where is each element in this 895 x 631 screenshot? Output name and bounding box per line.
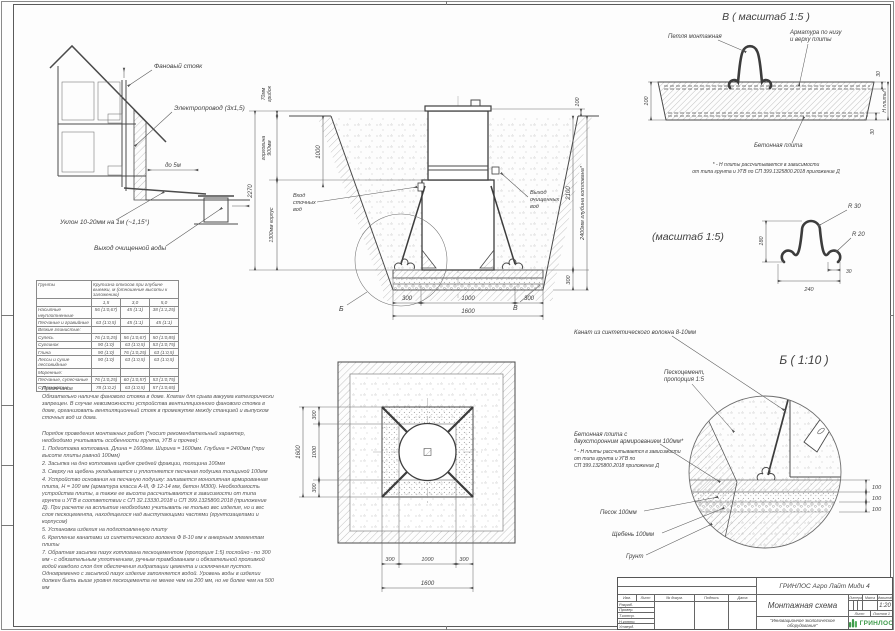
label-treated-water-outlet: Выход очищенной воды [94,244,166,252]
slope-cell: 76 (1:0,25) [121,349,150,356]
r20-leader [836,238,851,252]
detail-b-note-l2: от типа грунта и УГВ по [574,456,635,462]
detail-v-drawing: В ( масштаб 1:5 ) Петля монтажная Армату… [640,4,892,186]
label-sandcement-l1: Пескоцемент, [664,370,705,376]
center-hatch-square [424,449,431,456]
roof-line [50,46,166,142]
rebar-leader [799,44,808,86]
plan-view-drawing: 300 1000 300 1600 300 1000 300 1600 [293,326,545,608]
dim-l300b: 300 [312,482,318,492]
anchor-loop-profile [782,221,840,262]
label-concrete-plate: Бетонная плита [754,143,803,149]
slope-cell: 56 (1:0,67) [121,334,150,341]
depth-2: 3,0 [121,299,150,306]
right-center-mark [890,315,894,316]
house-elevation-drawing: до 5м Фановый стояк Электропровод (3х1,5… [36,28,254,270]
dim-240: 240 [803,287,814,293]
table-row: Насыпные неуплотненные56 (1:0,67)45 (1:1… [37,306,179,319]
table-row: Лессы и сухие лессовидные90 (1:0)63 (1:0… [37,356,179,369]
col-doc: № докум. [654,594,694,601]
slope-cell: 90 (1:0) [92,349,121,356]
dim-cap-label: грибок [267,85,273,102]
depth-1: 1,5 [92,299,121,306]
slab [658,82,874,120]
slope-cell: 90 (1:0) [92,341,121,348]
table-header-row: Грунты Крутизна откосов при глубине выем… [37,281,179,299]
dim-slab-100: 100 [644,95,650,105]
detail-b-note-l3: СП 399.1325800.2018 приложение Д [574,463,659,469]
table-row: Супесь76 (1:0,25)56 (1:0,67)50 (1:0,85) [37,334,179,341]
col-sign: Подпись [694,594,728,601]
slope-cell [121,326,150,333]
notes-paragraph-2: Порядок проведения монтажных работ (*нос… [42,431,275,445]
table-row: Песчаные, супесчаные76 (1:0,25)60 (1:0,5… [37,376,179,383]
top-center-mark [446,1,447,5]
dim-p1000: 1000 [421,557,434,563]
document-title: Монтажная схема [756,594,848,616]
loop-profile-detail: (масштаб 1:5) 180 240 30 R 30 R 20 [648,190,894,296]
label-outlet-l2: очищенных [530,197,560,203]
soil-name: Суглинок [37,341,92,348]
fan-stack-leader [128,70,152,86]
sand-layer [393,278,543,284]
col-list: Лист [636,594,654,601]
dim-r100: 100 [575,96,581,106]
soil-name: Песчаные и гравийные [37,319,92,326]
slope-cell [92,369,121,376]
dim-2270-text: 2270 [248,184,254,199]
col-date: Дата [728,594,756,601]
margin-divider [1,405,13,406]
label-sandcement-l2: пропорция 1:5 [664,377,705,383]
slope-cell: 38 (1:1,25) [150,306,179,319]
soil-name: Глина [37,349,92,356]
loop-leader [718,40,746,52]
fan-stack-pipe [122,80,126,178]
callout-b: Б [339,306,344,313]
detail-b-leader [347,292,367,305]
product-name: ГРИНЛОС Агро Лайт Миди 4 [756,578,892,594]
vent-cap [471,100,480,106]
label-inlet-l2: сточных [293,200,316,206]
label-plate-l1: Бетонная плита с [574,432,627,438]
title-block: Изм. Лист № докум. Подпись Дата Разраб. … [617,577,893,630]
table-row: Глина90 (1:0)76 (1:0,25)63 (1:0,5) [37,349,179,356]
label-rebar-l1: Арматура по низу [789,30,842,36]
depth-3: 5,0 [150,299,179,306]
dim-neck-900: 900мм [267,140,273,156]
dim-b1600: 1600 [461,309,475,315]
col-header-soil: Грунты [37,281,92,299]
label-soil: Грунт [626,554,643,560]
note-item-1: 1. Подготовка котлована. Длина = 1600мм.… [42,446,275,460]
dim-b1000: 1000 [461,296,475,302]
soil-name: Лессы и сухие лессовидные [37,356,92,369]
soil-name: Вязкие глинистые: [37,326,92,333]
window [62,132,94,172]
slope-cell: 76 (1:0,25) [92,376,121,383]
label-sand: Песок 100мм [600,510,637,516]
detail-v-note-l1: * - Н плиты рассчитывается в зависимости [713,162,820,168]
label-rope: Канат из синтетического волокна 8-10мм [574,330,696,336]
label-r30: R 30 [848,204,861,210]
brand-name: ГРИНЛОС [860,620,892,627]
r30-leader [818,210,847,226]
outlet-leader [166,208,222,246]
slope-cell: 63 (1:0,5) [121,341,150,348]
slope-cell: 90 (1:0) [92,356,121,369]
gravel-layer [393,284,543,290]
doc-number-cell [654,601,694,629]
dim-p1600: 1600 [421,581,435,587]
note-item-5: 5. Установка изделия на подготовленную п… [42,527,275,534]
soil-slope-table: Грунты Крутизна откосов при глубине выем… [36,280,179,392]
tank-cover [425,106,491,111]
drawing-sheet: до 5м Фановый стояк Электропровод (3х1,5… [0,0,895,631]
row-utverd: Утверд. [618,623,654,629]
label-pipe-slope: Уклон 10-20мм на 1м (~1,15°) [59,218,149,226]
slope-cell: 53 (1:0,75) [150,376,179,383]
dim-distance-5m: до 5м [165,163,181,169]
plate-leader [792,117,804,143]
table-row: Моренные: [37,369,179,376]
detail-b-title: Б ( 1:10 ) [779,353,828,367]
installation-cross-section: Б В 2270 70мм грибок горловина 900мм 130… [243,56,605,314]
slope-cell: 45 (1:1) [121,319,150,326]
slope-cell [150,326,179,333]
tank-body [422,180,494,270]
dim-h-plity: Н плиты* [882,88,888,112]
slope-cell: 50 (1:0,85) [150,334,179,341]
dim-b300a: 300 [402,296,413,302]
soil-name: Моренные: [37,369,92,376]
dim-r300: 300 [566,274,572,284]
table-row: Вязкие глинистые: [37,326,179,333]
exterior-wall-hatched [134,110,146,200]
dim-30: 30 [846,269,852,275]
label-outlet-l3: вод [530,204,539,210]
soil-leader [646,524,712,555]
table-row: Песчаные и гравийные63 (1:0,5)45 (1:1)45… [37,319,179,326]
fixture-1st-floor [108,166,122,175]
outlet-stub [492,167,499,174]
soil-name: Песчаные, супесчаные [37,376,92,383]
label-inlet-l1: Вход [293,193,305,199]
slope-cell: 63 (1:0,5) [150,356,179,369]
note-item-4: 4. Устройство основания на песчаную поду… [42,477,275,526]
slope-cell: 63 (1:0,5) [150,349,179,356]
cell-empty [37,299,92,306]
label-inlet-l3: вод [293,207,302,213]
massa-cell [862,600,877,610]
window [62,82,94,120]
dim-b300b: 300 [524,296,535,302]
dim-pit-depth: 2400мм глубина котлована* [580,165,586,241]
dim-30-top: 30 [876,71,882,77]
detail-v-note-l2: от типа грунта и УГВ по СП 399.1325800.2… [692,169,840,175]
note-item-7: 7. Обратная засыпка пазух котлована песк… [42,550,275,592]
dim-l1000: 1000 [312,445,318,458]
slope-cell: 63 (1:0,5) [92,319,121,326]
grinlos-logo-icon [848,618,858,628]
notes-gap [42,423,275,430]
soil-name: Насыпные неуплотненные [37,306,92,319]
margin-divider [1,465,13,466]
slope-cell: 45 (1:1) [121,306,150,319]
detail-v-title: В ( масштаб 1:5 ) [722,11,810,23]
scale-value: 1:20 [877,600,892,610]
label-rebar-l2: и верху плиты [790,37,832,43]
label-r20: R 20 [852,232,865,238]
pipe-elbow [122,178,126,191]
dim-100c: 100 [872,507,882,513]
loop-detail-title: (масштаб 1:5) [652,231,724,243]
dim-body-1300: 1300мм корпус [269,207,275,243]
bottom-center-mark [446,626,447,630]
table-row: Суглинок90 (1:0)63 (1:0,5)53 (1:0,75) [37,341,179,348]
dim-180: 180 [759,235,765,245]
company-tagline: "Инновационное экологическое оборудовани… [756,616,848,629]
note-item-2: 2. Засыпка на дно котлована щебня средне… [42,461,275,468]
margin-divider [1,525,13,526]
slope-cell: 53 (1:0,75) [150,341,179,348]
note-item-6: 6. Крепление канатами из синтетического … [42,535,275,549]
dim-100a: 100 [872,485,882,491]
logo-cell: ГРИНЛОС [848,616,892,629]
col-header-slope: Крутизна откосов при глубине выемки, м (… [92,281,179,299]
slope-cell [92,326,121,333]
revision-blank-row [618,578,756,586]
slope-cell: 76 (1:0,25) [92,334,121,341]
notes-heading: Примечание [42,386,275,393]
slope-cell: 45 (1:1) [150,319,179,326]
slope-cell: 60 (1:0,57) [121,376,150,383]
table-subheader-row: 1,5 3,0 5,0 [37,299,179,306]
dim-p300a: 300 [385,557,395,563]
col-izm: Изм. [618,594,636,601]
slope-cell [121,369,150,376]
dim-2100: 2100 [566,186,572,201]
concrete-plate [393,270,543,278]
dim-100b: 100 [872,496,882,502]
left-center-mark [1,315,13,316]
soil-name: Супесь [37,334,92,341]
label-outlet-l1: Выход [530,190,547,196]
detail-b-note-l1: * - Н плиты рассчитывается в зависимости [574,449,681,455]
slope-cell [150,369,179,376]
notes-paragraph-1: Обязательно наличие фанового стояка в до… [42,394,275,422]
label-plate-l2: двухсторонним армированием 100мм* [574,439,684,445]
detail-b-drawing: Б ( 1:10 ) Канат из синтетического волок… [572,322,894,584]
installation-notes: Примечание Обязательно наличие фанового … [42,386,275,593]
label-fan-stack: Фановый стояк [154,62,203,70]
signature-cell [694,601,728,629]
label-lifting-loop: Петля монтажная [668,34,723,40]
slope-cell: 56 (1:0,67) [92,306,121,319]
note-item-3: 3. Сверху на щебень укладывается и уплот… [42,469,275,476]
dim-30-bot: 30 [870,129,876,135]
dim-l300a: 300 [312,409,318,419]
date-cell [728,601,756,629]
slope-cell: 63 (1:0,5) [121,356,150,369]
station-body [204,198,228,222]
dim-p300b: 300 [459,557,469,563]
revision-blank-row [618,586,756,594]
label-electric-cable: Электропровод (3х1,5) [174,104,245,112]
window [98,82,120,120]
label-gravel: Щебень 100мм [612,532,654,538]
dim-l1600: 1600 [296,445,302,459]
callout-v: В [513,305,518,312]
dim-inlet-depth-1000: 1000 [316,145,322,159]
